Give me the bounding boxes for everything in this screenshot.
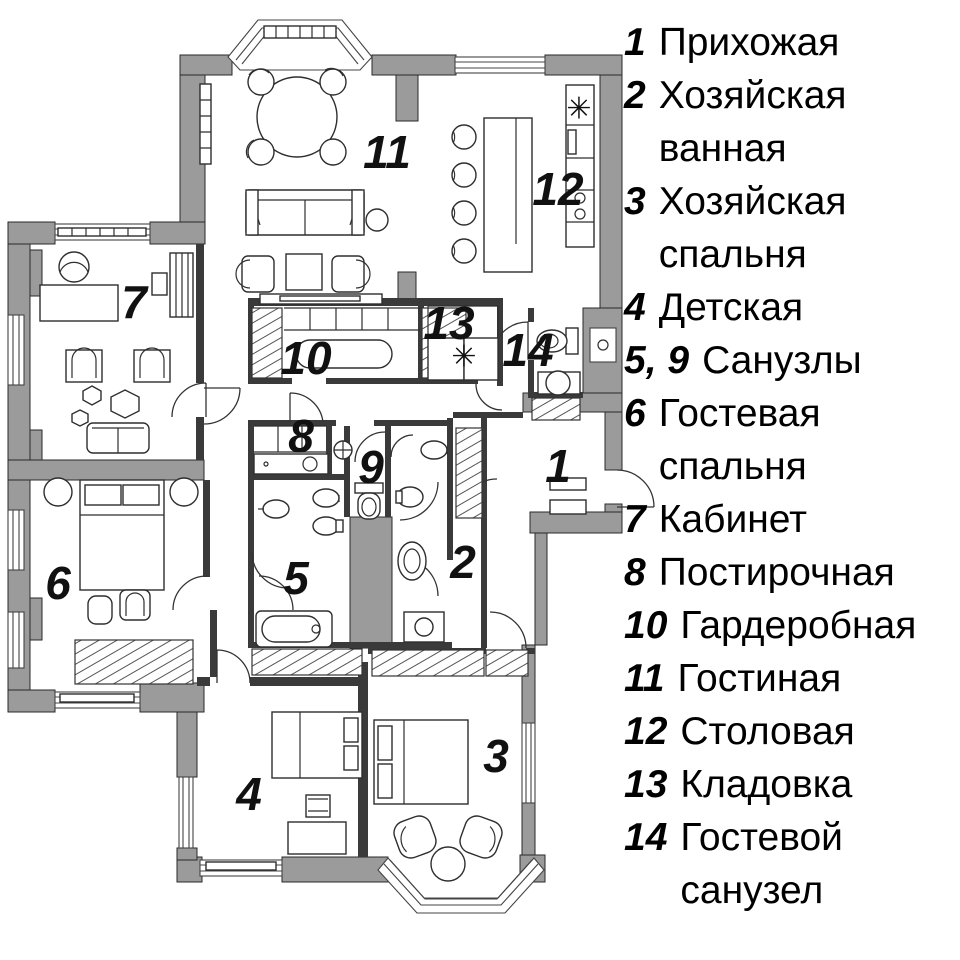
legend-item-13: 13Кладовка	[624, 758, 960, 811]
room-label-4: 4	[235, 768, 262, 820]
legend-label: Прихожая	[659, 16, 840, 69]
room-label-7: 7	[121, 276, 149, 328]
room-label-3: 3	[483, 730, 509, 782]
legend-number: 4	[624, 281, 646, 334]
legend-label: Хозяйская спальня	[659, 175, 960, 281]
legend-item-8: 8Постирочная	[624, 546, 960, 599]
legend-label: Детская	[659, 281, 803, 334]
kids-room-furniture	[272, 712, 362, 854]
legend-number: 5, 9	[624, 334, 689, 387]
legend-item-10: 10Гардеробная	[624, 599, 960, 652]
legend-number: 10	[624, 599, 667, 652]
legend-label: Столовая	[680, 705, 854, 758]
bay-window-top	[228, 20, 372, 70]
room-label-11: 11	[363, 126, 411, 178]
floor-plan-drawing: 1234567891011121314 ✳✳	[0, 0, 660, 960]
legend-item-7: 7Кабинет	[624, 493, 960, 546]
room-label-6: 6	[45, 557, 71, 609]
legend-number: 7	[624, 493, 646, 546]
legend-number: 3	[624, 175, 646, 228]
legend-item-4: 4Детская	[624, 281, 960, 334]
appliance-symbol: ✳	[451, 340, 476, 375]
legend-number: 14	[624, 811, 667, 864]
master-bath-furniture	[396, 441, 447, 642]
legend: 1Прихожая2Хозяйская ванная3Хозяйская спа…	[624, 16, 960, 917]
legend-item-2: 2Хозяйская ванная	[624, 69, 960, 175]
legend-label: Постирочная	[659, 546, 895, 599]
legend-item-14: 14Гостевой санузел	[624, 811, 960, 917]
legend-number: 12	[624, 705, 667, 758]
legend-item-6: 6Гостевая спальня	[624, 387, 960, 493]
legend-label: Гардеробная	[680, 599, 916, 652]
legend-number: 13	[624, 758, 667, 811]
room-label-12: 12	[532, 163, 584, 215]
legend-number: 1	[624, 16, 646, 69]
cooktop-symbol: ✳	[566, 92, 591, 127]
legend-label: Кладовка	[680, 758, 852, 811]
legend-item-12: 12Столовая	[624, 705, 960, 758]
legend-label: Кабинет	[659, 493, 807, 546]
legend-number: 6	[624, 387, 646, 440]
room-label-10: 10	[280, 332, 332, 384]
legend-number: 11	[624, 652, 665, 705]
legend-item-11: 11Гостиная	[624, 652, 960, 705]
room-label-9: 9	[358, 441, 384, 493]
room-label-2: 2	[449, 536, 476, 588]
legend-label: Хозяйская ванная	[659, 69, 960, 175]
room-label-14: 14	[502, 324, 553, 376]
legend-label: Гостевой санузел	[680, 811, 960, 917]
room-label-1: 1	[545, 440, 571, 492]
living-room-furniture	[200, 68, 388, 304]
legend-item-1: 1Прихожая	[624, 16, 960, 69]
office-furniture	[40, 252, 193, 453]
floor-plan-page: { "title": "Apartment floor plan with ro…	[0, 0, 960, 960]
legend-label: Гостевая спальня	[659, 387, 960, 493]
legend-label: Санузлы	[702, 334, 862, 387]
room-label-5: 5	[283, 552, 310, 604]
legend-label: Гостиная	[678, 652, 842, 705]
legend-item-5--9: 5, 9Санузлы	[624, 334, 960, 387]
legend-item-3: 3Хозяйская спальня	[624, 175, 960, 281]
room-label-8: 8	[288, 410, 314, 462]
legend-number: 2	[624, 69, 646, 122]
legend-number: 8	[624, 546, 646, 599]
